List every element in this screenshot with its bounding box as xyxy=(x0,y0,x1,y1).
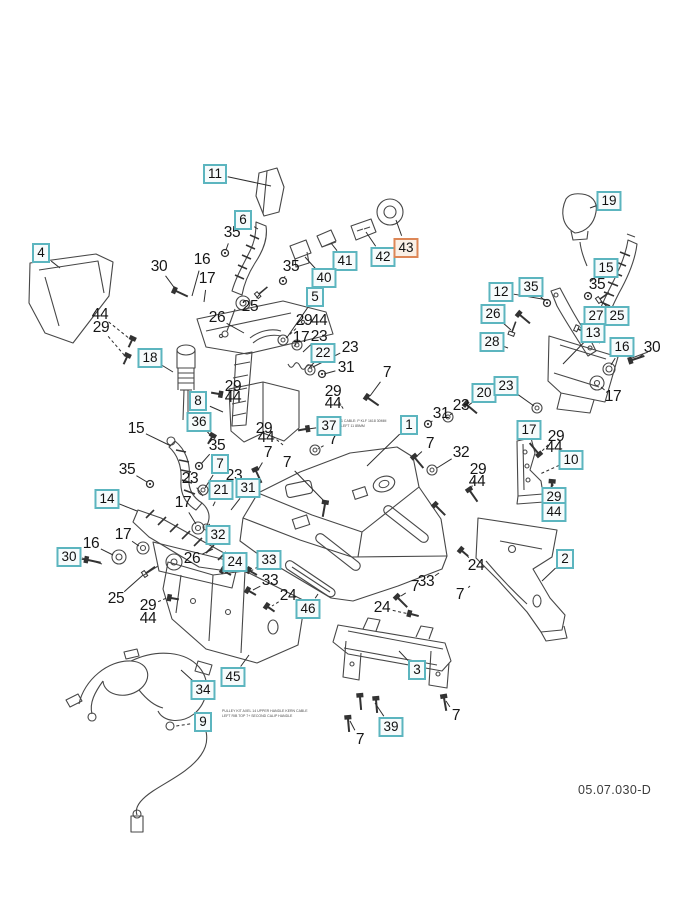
callout-5[interactable]: 5 xyxy=(306,287,324,307)
callout-18[interactable]: 18 xyxy=(137,348,162,368)
callout-35[interactable]: 35 xyxy=(518,277,543,297)
part-number-24: 24 xyxy=(374,599,390,617)
part-number-7: 7 xyxy=(283,454,291,472)
callout-23[interactable]: 23 xyxy=(493,376,518,396)
part-number-16: 16 xyxy=(194,251,210,269)
part-number-17: 17 xyxy=(175,494,191,512)
callout-24[interactable]: 24 xyxy=(222,552,247,572)
part-number-17: 17 xyxy=(293,329,309,347)
part-number-35: 35 xyxy=(589,276,605,294)
diagram-line-art xyxy=(0,0,688,900)
callout-25[interactable]: 25 xyxy=(604,306,629,326)
callout-14[interactable]: 14 xyxy=(94,489,119,509)
fine-print-note-2: PULLEY KIT AXEL 14 UPPER HANDLE KERN CAB… xyxy=(222,709,308,718)
part-number-7: 7 xyxy=(264,444,272,462)
callout-33[interactable]: 33 xyxy=(256,550,281,570)
part-number-33: 33 xyxy=(262,572,278,590)
part-number-15: 15 xyxy=(128,420,144,438)
callout-21[interactable]: 21 xyxy=(208,480,233,500)
part-number-7: 7 xyxy=(356,731,364,749)
part-number-23: 23 xyxy=(453,397,469,415)
part-number-31: 31 xyxy=(433,405,449,423)
part-number-31: 31 xyxy=(338,359,354,377)
part-number-23: 23 xyxy=(342,339,358,357)
callout-28[interactable]: 28 xyxy=(479,332,504,352)
part-number-30: 30 xyxy=(644,339,660,357)
callout-7[interactable]: 7 xyxy=(211,454,229,474)
part-number-24: 24 xyxy=(280,587,296,605)
part-number-17: 17 xyxy=(199,270,215,288)
callout-46[interactable]: 46 xyxy=(295,599,320,619)
callout-13[interactable]: 13 xyxy=(580,323,605,343)
part-number-35: 35 xyxy=(283,258,299,276)
part-number-7: 7 xyxy=(426,435,434,453)
callout-10[interactable]: 10 xyxy=(558,450,583,470)
callout-19[interactable]: 19 xyxy=(596,191,621,211)
callout-12[interactable]: 12 xyxy=(488,282,513,302)
callout-40[interactable]: 40 xyxy=(311,268,336,288)
callout-44[interactable]: 44 xyxy=(541,502,566,522)
callout-22[interactable]: 22 xyxy=(310,343,335,363)
callout-39[interactable]: 39 xyxy=(378,717,403,737)
callout-17[interactable]: 17 xyxy=(516,420,541,440)
part-number-44: 44 xyxy=(469,473,485,491)
callout-9[interactable]: 9 xyxy=(194,712,212,732)
part-number-25: 25 xyxy=(242,298,258,316)
callout-32[interactable]: 32 xyxy=(205,525,230,545)
part-number-44: 44 xyxy=(325,395,341,413)
part-number-7: 7 xyxy=(452,707,460,725)
callout-4[interactable]: 4 xyxy=(32,243,50,263)
callout-42[interactable]: 42 xyxy=(370,247,395,267)
fine-print-note-1: 1 CABLE: P KLF 1618 30MMLEFT 11 85MM xyxy=(341,419,386,428)
callout-8[interactable]: 8 xyxy=(189,391,207,411)
part-number-35: 35 xyxy=(119,461,135,479)
callout-34[interactable]: 34 xyxy=(190,680,215,700)
part-number-33: 33 xyxy=(418,573,434,591)
callout-1[interactable]: 1 xyxy=(400,415,418,435)
callout-2[interactable]: 2 xyxy=(556,549,574,569)
diagram-code: 05.07.030-D xyxy=(578,783,651,797)
callout-15[interactable]: 15 xyxy=(593,258,618,278)
part-number-7: 7 xyxy=(411,578,419,596)
part-number-25: 25 xyxy=(108,590,124,608)
callout-43-highlighted[interactable]: 43 xyxy=(393,238,418,258)
callout-16[interactable]: 16 xyxy=(609,337,634,357)
part-number-44: 44 xyxy=(140,610,156,628)
part-number-16: 16 xyxy=(83,535,99,553)
callout-11[interactable]: 11 xyxy=(203,164,227,184)
exploded-parts-diagram: 05.07.030-D 3530161726253544292944172323… xyxy=(0,0,688,900)
part-number-26: 26 xyxy=(184,550,200,568)
part-number-7: 7 xyxy=(456,586,464,604)
part-number-7: 7 xyxy=(383,364,391,382)
callout-31[interactable]: 31 xyxy=(235,478,260,498)
callout-30[interactable]: 30 xyxy=(56,547,81,567)
callout-3[interactable]: 3 xyxy=(408,660,426,680)
part-number-17: 17 xyxy=(115,526,131,544)
part-number-30: 30 xyxy=(151,258,167,276)
part-number-29: 29 xyxy=(93,319,109,337)
part-number-24: 24 xyxy=(468,557,484,575)
callout-37[interactable]: 37 xyxy=(316,416,341,436)
part-number-29: 29 xyxy=(296,312,312,330)
part-number-23: 23 xyxy=(182,470,198,488)
callout-45[interactable]: 45 xyxy=(220,667,245,687)
part-number-26: 26 xyxy=(209,309,225,327)
callout-36[interactable]: 36 xyxy=(186,412,211,432)
callout-26[interactable]: 26 xyxy=(480,304,505,324)
part-number-35: 35 xyxy=(209,437,225,455)
part-number-32: 32 xyxy=(453,444,469,462)
callout-6[interactable]: 6 xyxy=(234,210,252,230)
part-number-17: 17 xyxy=(605,388,621,406)
part-number-44: 44 xyxy=(225,389,241,407)
